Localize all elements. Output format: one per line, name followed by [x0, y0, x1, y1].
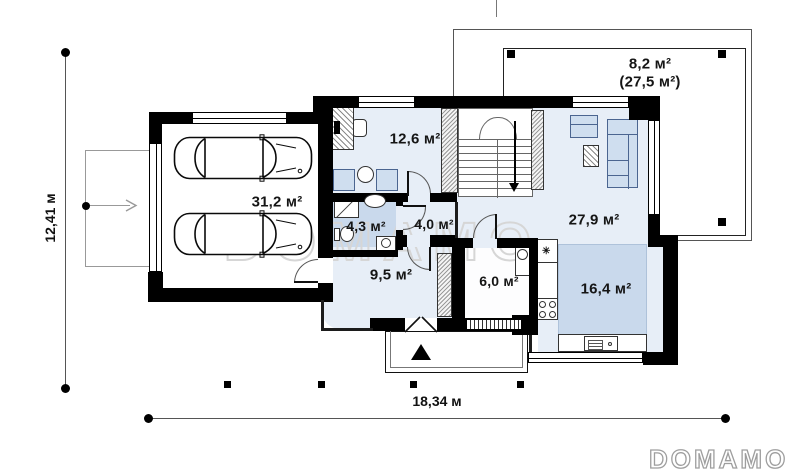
logo: DOMAMO	[649, 444, 788, 473]
room-label-entrance-hall: 9,5 м²	[370, 267, 412, 284]
side-table	[357, 166, 374, 183]
section-mark	[496, 0, 497, 17]
washing-machine-door-icon	[381, 238, 391, 248]
entrance-door-icon	[403, 314, 439, 334]
room-label-hall: 4,0 м²	[414, 216, 454, 232]
driveway-arrow-dot	[82, 202, 90, 210]
door-leaf	[495, 214, 497, 239]
office-chair	[352, 119, 367, 137]
door-opening	[408, 193, 430, 202]
terrace-window	[572, 96, 629, 108]
burner-icon	[549, 311, 556, 318]
garage-gate	[149, 143, 162, 272]
dimension-tick	[318, 381, 325, 388]
room-label-kitchen: 16,4 м²	[581, 281, 632, 298]
terrace-post-icon	[718, 218, 726, 226]
width-dimension-label: 18,34 м	[412, 393, 461, 409]
kitchen-window	[528, 352, 643, 363]
wall	[318, 96, 333, 258]
wall	[396, 235, 407, 247]
burner-icon	[539, 301, 546, 308]
wall	[415, 96, 572, 108]
terrace-post-icon	[507, 50, 515, 58]
burner-icon	[549, 301, 556, 308]
wardrobe	[437, 253, 452, 317]
living-room-window	[648, 120, 660, 215]
garage-window	[192, 112, 287, 124]
door-opening	[318, 258, 333, 283]
wall	[321, 300, 324, 331]
door-leaf	[407, 171, 409, 196]
door-opening	[396, 206, 403, 230]
pantry-window	[466, 319, 522, 330]
door-leaf	[294, 281, 318, 283]
wall	[629, 96, 660, 120]
wall	[430, 193, 457, 202]
driveway-outline	[85, 150, 153, 267]
dimension-tick	[410, 381, 417, 388]
wall	[455, 202, 458, 238]
wall	[663, 235, 678, 365]
door-opening	[473, 238, 497, 248]
freezer-icon: ✳	[542, 246, 550, 257]
wall	[643, 352, 678, 365]
wall	[452, 238, 465, 322]
floor-plan: DОМАМО	[0, 0, 800, 473]
staircase	[458, 108, 533, 197]
burner-icon	[539, 311, 546, 318]
stair-partition	[531, 110, 544, 190]
car-icon	[172, 134, 314, 182]
kitchen-sink	[584, 336, 618, 351]
wall	[370, 318, 405, 331]
room-label-pantry: 6,0 м²	[479, 273, 519, 289]
wall	[321, 328, 373, 331]
monitor-icon	[334, 121, 340, 134]
depth-dimension-label: 12,41 м	[42, 193, 58, 242]
room-label-terrace-total: (27,5 м²)	[619, 74, 680, 91]
dimension-tick	[224, 381, 231, 388]
dimension-dot	[61, 48, 70, 57]
room-label-garage: 31,2 м²	[252, 194, 303, 211]
room-label-bathroom: 4,3 м²	[346, 218, 386, 234]
dimension-dot	[61, 384, 70, 393]
sofa	[607, 119, 638, 188]
stairs-direction-arrow-icon	[509, 183, 519, 192]
door-opening	[407, 235, 430, 247]
door-leaf	[429, 247, 431, 271]
dimension-dot	[721, 414, 730, 423]
wall	[148, 288, 333, 302]
depth-dimension-line	[65, 52, 66, 388]
wall	[330, 250, 398, 257]
wall	[497, 238, 538, 248]
armchair	[376, 169, 398, 191]
coffee-table	[583, 145, 599, 167]
entrance-arrow-icon	[411, 344, 431, 360]
wall	[149, 112, 162, 144]
boiler-dial-icon	[517, 249, 528, 260]
dimension-tick	[517, 381, 524, 388]
armchair	[570, 115, 598, 138]
driveway-arrow-icon	[124, 198, 138, 213]
porch-inner-line	[390, 331, 523, 368]
terrace-post-icon	[718, 50, 726, 58]
door-leaf	[403, 205, 426, 207]
room-label-living-room: 27,9 м²	[569, 212, 620, 229]
bathroom-sink	[364, 194, 386, 208]
room-label-cabinet: 12,6 м²	[390, 131, 441, 148]
dimension-dot	[144, 414, 153, 423]
cabinet-window	[358, 96, 415, 108]
car-icon	[172, 210, 314, 258]
stair-partition	[441, 108, 458, 193]
width-dimension-line	[148, 418, 726, 419]
armchair	[333, 169, 355, 191]
wall	[529, 335, 532, 353]
room-label-terrace: 8,2 м²	[629, 56, 671, 73]
